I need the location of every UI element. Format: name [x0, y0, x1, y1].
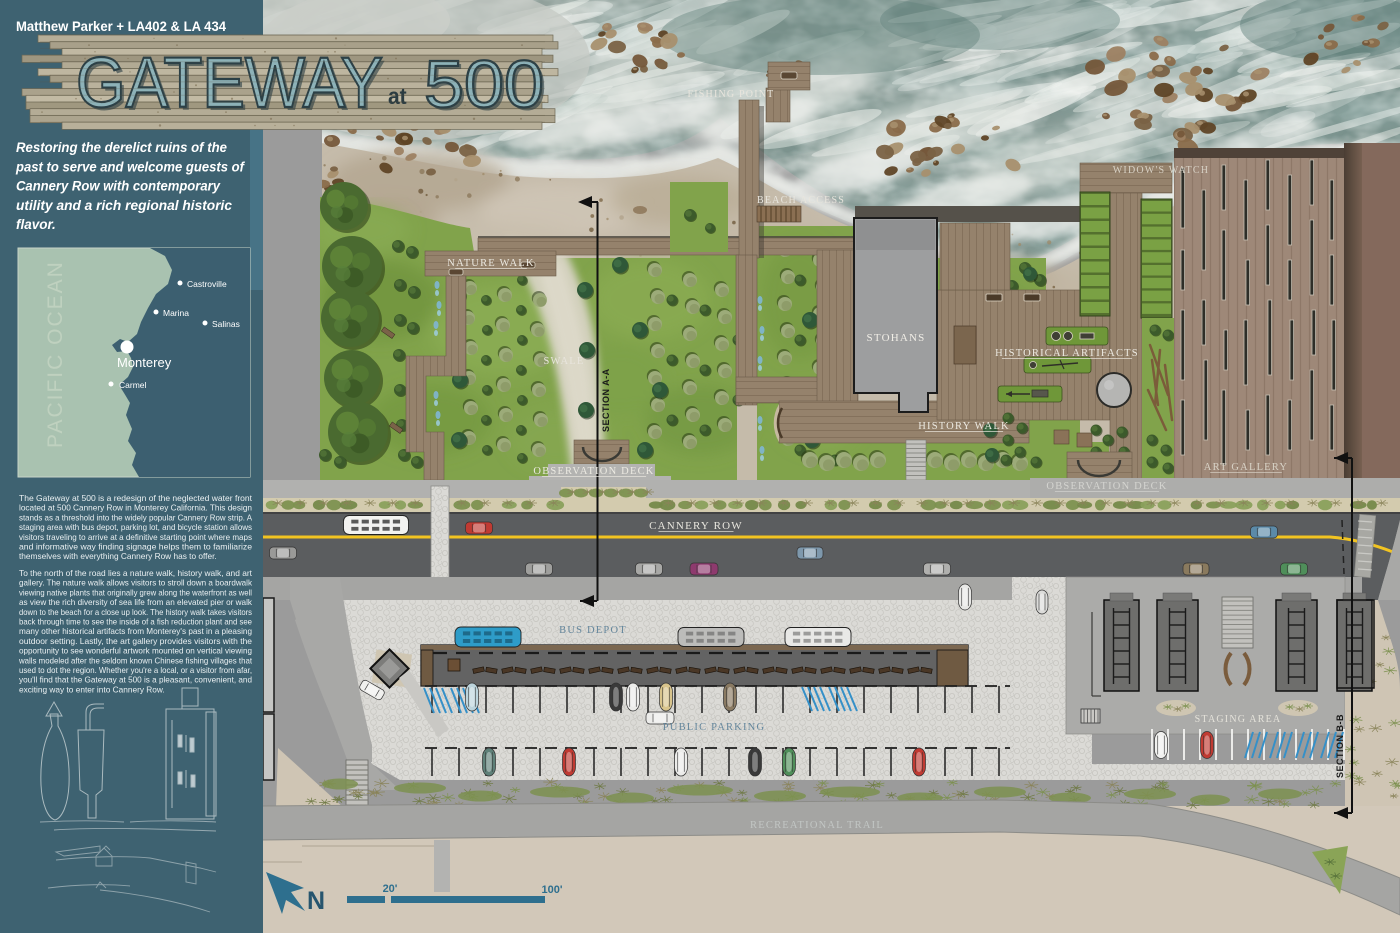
svg-text:used to dot the region. Whethe: used to dot the region. Whether you're a… — [19, 665, 252, 675]
svg-text:Salinas: Salinas — [212, 319, 240, 329]
svg-text:exciting way to enter into Can: exciting way to enter into Cannery Row. — [19, 684, 165, 694]
svg-text:located at 500 Cannery Row in: located at 500 Cannery Row in Monterey C… — [19, 503, 252, 513]
svg-text:you'll find that the Gateway a: you'll find that the Gateway at 500 is a… — [19, 675, 252, 685]
svg-text:HISTORICAL ARTIFACTS: HISTORICAL ARTIFACTS — [995, 348, 1139, 359]
svg-text:OBSERVATION DECK: OBSERVATION DECK — [1046, 481, 1167, 492]
svg-text:down to the beach for a close: down to the beach for a close up look. T… — [19, 607, 252, 617]
svg-text:gallery. The nature walk allow: gallery. The nature walk allows visitors… — [19, 578, 253, 588]
svg-text:N: N — [307, 887, 325, 915]
svg-text:WIDOW'S WATCH: WIDOW'S WATCH — [1113, 165, 1209, 176]
svg-text:at: at — [388, 83, 407, 109]
svg-text:BEACH ACCESS: BEACH ACCESS — [757, 195, 845, 206]
svg-text:SWALE: SWALE — [544, 356, 585, 367]
svg-text:Restoring the derelict ruins o: Restoring the derelict ruins of the — [16, 140, 227, 155]
svg-text:Castroville: Castroville — [187, 279, 227, 289]
svg-text:BUS DEPOT: BUS DEPOT — [559, 625, 627, 636]
svg-text:Marina: Marina — [163, 308, 189, 318]
svg-text:SECTION A-A: SECTION A-A — [601, 368, 611, 432]
svg-text:OBSERVATION DECK: OBSERVATION DECK — [533, 466, 654, 477]
svg-text:flavor.: flavor. — [16, 217, 56, 232]
svg-text:visitors traveling to arrive a: visitors traveling to arrive at a defini… — [19, 532, 252, 542]
svg-text:PUBLIC PARKING: PUBLIC PARKING — [663, 722, 765, 733]
svg-text:stands as a threshold into the: stands as a threshold into the widely po… — [19, 512, 252, 522]
svg-text:To the north of the road lies: To the north of the road lies a nature w… — [19, 568, 253, 578]
svg-text:outdoor setting. Lastly, the a: outdoor setting. Lastly, the art gallery… — [19, 636, 252, 646]
svg-text:walls modeled after the seldom: walls modeled after the seldom known Chi… — [18, 655, 253, 665]
svg-text:HISTORY WALK: HISTORY WALK — [918, 421, 1010, 432]
svg-text:PACIFIC OCEAN: PACIFIC OCEAN — [44, 260, 67, 448]
svg-text:STAGING AREA: STAGING AREA — [1195, 714, 1282, 725]
svg-text:many other historical artifact: many other historical artifacts from Mon… — [19, 626, 252, 636]
svg-text:utility and a rich regional hi: utility and a rich regional historic — [16, 198, 232, 213]
svg-text:CANNERY ROW: CANNERY ROW — [649, 520, 743, 532]
svg-text:Monterey: Monterey — [117, 355, 172, 370]
svg-text:past to serve and welcome gues: past to serve and welcome guests of — [15, 159, 245, 174]
svg-text:NATURE WALK: NATURE WALK — [447, 258, 534, 269]
svg-text:themselves with everything Can: themselves with everything Cannery Row h… — [19, 551, 217, 561]
svg-text:The Gateway at 500 is a redesi: The Gateway at 500 is a redesign of the … — [19, 493, 253, 503]
svg-text:Matthew Parker + LA402 & LA 43: Matthew Parker + LA402 & LA 434 — [16, 18, 226, 34]
svg-text:staging area with bus depot, p: staging area with bus depot, parking lot… — [19, 522, 252, 532]
svg-text:STOHANS: STOHANS — [867, 332, 926, 344]
svg-text:and informative way finding si: and informative way finding signage help… — [19, 542, 252, 552]
svg-text:20': 20' — [383, 883, 398, 895]
svg-text:Carmel: Carmel — [119, 380, 147, 390]
svg-text:Cannery Row with contemporary: Cannery Row with contemporary — [16, 179, 221, 194]
svg-text:500: 500 — [424, 48, 544, 121]
svg-text:FISHING POINT: FISHING POINT — [688, 89, 775, 100]
svg-text:100': 100' — [542, 884, 563, 896]
svg-text:RECREATIONAL TRAIL: RECREATIONAL TRAIL — [750, 820, 884, 831]
svg-text:opportunity to see wonderful a: opportunity to see wonderful artwork mou… — [19, 646, 252, 656]
svg-text:SECTION B-B: SECTION B-B — [1335, 714, 1345, 778]
svg-text:back through time to see the i: back through time to see the inside of a… — [19, 617, 252, 627]
svg-text:viewing native plants that ori: viewing native plants that originally gr… — [19, 587, 252, 597]
svg-text:ART GALLERY: ART GALLERY — [1204, 462, 1288, 473]
svg-text:as view the rich diversity of: as view the rich diversity of sea life f… — [19, 597, 253, 607]
